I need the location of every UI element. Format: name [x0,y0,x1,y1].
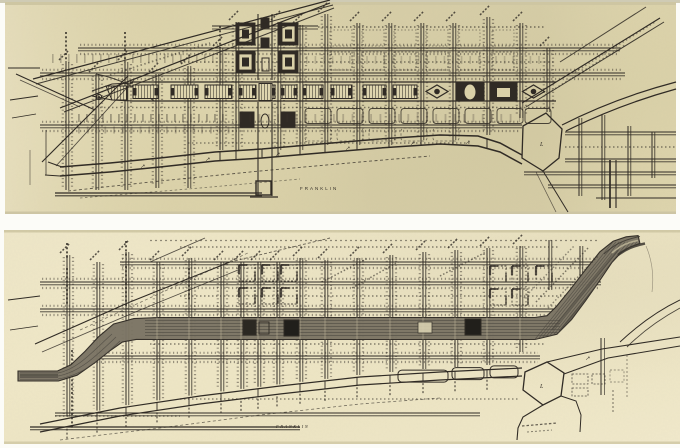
svg-text:FRANKLIN: FRANKLIN [275,424,309,429]
svg-text:L: L [539,142,544,148]
svg-text:↗: ↗ [585,356,590,362]
svg-text:FRANKLIN: FRANKLIN [300,186,338,191]
svg-text:↗: ↗ [410,141,415,147]
svg-text:↗: ↗ [205,157,210,163]
svg-text:↗: ↗ [275,152,280,158]
svg-text:↗: ↗ [465,140,470,146]
svg-text:↗: ↗ [345,146,350,152]
svg-text:L: L [539,384,544,390]
svg-text:↗: ↗ [140,164,145,170]
